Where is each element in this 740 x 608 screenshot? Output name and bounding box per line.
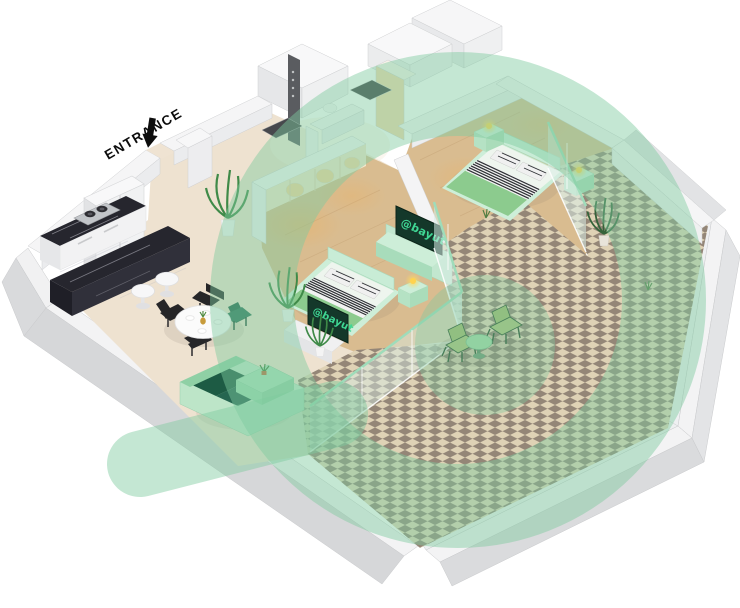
lamp: [410, 278, 416, 284]
floorplan-svg: @bayut @bayut: [0, 0, 740, 608]
watermark-inner-dot: [415, 275, 555, 415]
floorplan-image: @bayut @bayut: [0, 0, 740, 608]
